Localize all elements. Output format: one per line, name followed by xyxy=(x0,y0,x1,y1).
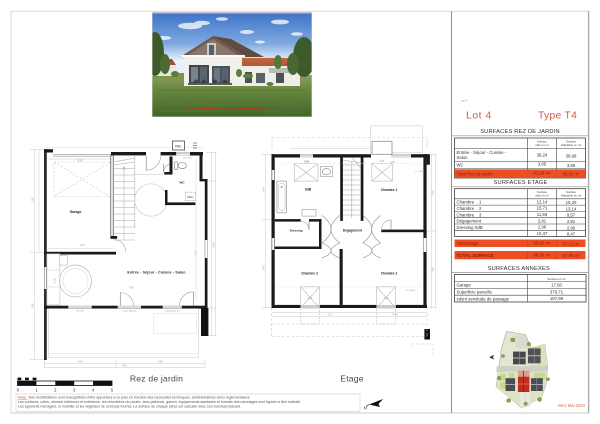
svg-text:187,98: 187,98 xyxy=(550,296,564,301)
svg-text:2,96: 2,96 xyxy=(31,303,35,309)
svg-text:Dressing: Dressing xyxy=(290,229,303,233)
svg-text:coul 0,90x2,15: coul 0,90x2,15 xyxy=(122,310,137,312)
svg-text:Total Etage: Total Etage xyxy=(457,241,480,246)
svg-text:Vr 1,98m²: Vr 1,98m² xyxy=(406,289,416,292)
svg-text:Chambre 2: Chambre 2 xyxy=(381,272,398,276)
svg-text:10,20: 10,20 xyxy=(566,200,577,205)
svg-text:Type T4: Type T4 xyxy=(538,111,577,122)
svg-text:al 1,50e: al 1,50e xyxy=(76,310,85,312)
svg-text:2,96: 2,96 xyxy=(538,225,547,230)
svg-text:40,53 m²: 40,53 m² xyxy=(563,172,581,177)
svg-text:Rez de jardin: Rez de jardin xyxy=(130,373,183,383)
svg-text:1: 1 xyxy=(35,388,38,393)
svg-text:Chambre 2: Chambre 2 xyxy=(457,206,482,211)
svg-text:Les appareils ménagers, le mob: Les appareils ménagers, le mobilier et l… xyxy=(18,405,241,409)
svg-text:2,05: 2,05 xyxy=(380,161,385,163)
svg-text:PAC: PAC xyxy=(187,195,194,199)
svg-text:Etage: Etage xyxy=(340,373,363,383)
svg-text:Superficie parcelle: Superficie parcelle xyxy=(457,290,493,295)
svg-text:36,68: 36,68 xyxy=(566,154,577,159)
svg-text:98,69 m²: 98,69 m² xyxy=(534,252,552,257)
svg-text:al 1,50 h: al 1,50 h xyxy=(183,157,192,159)
svg-text:5: 5 xyxy=(111,388,114,393)
svg-text:2,90: 2,90 xyxy=(79,243,85,247)
svg-text:4,18: 4,18 xyxy=(384,298,389,300)
svg-text:Les surfaces, côtes, niveaux i: Les surfaces, côtes, niveaux intérieurs … xyxy=(18,400,301,404)
svg-text:Nota : Des modifications sont: Nota : Des modifications sont susceptibl… xyxy=(18,396,250,400)
svg-text:utile en m²: utile en m² xyxy=(535,143,549,147)
svg-text:2,81: 2,81 xyxy=(567,219,576,224)
svg-text:5,56: 5,56 xyxy=(194,250,198,256)
svg-text:SURFACES ETAGE: SURFACES ETAGE xyxy=(494,180,548,186)
svg-text:7,46: 7,46 xyxy=(128,286,134,290)
svg-text:Total Rez de jardin: Total Rez de jardin xyxy=(457,171,494,176)
svg-text:43,09 m²: 43,09 m² xyxy=(534,171,552,176)
svg-text:39,24: 39,24 xyxy=(537,153,548,158)
svg-text:1,20: 1,20 xyxy=(304,161,309,163)
svg-text:3,85: 3,85 xyxy=(538,162,547,167)
svg-text:3,66: 3,66 xyxy=(157,360,163,364)
svg-text:SURFACES ANNEXES: SURFACES ANNEXES xyxy=(488,266,550,272)
svg-text:2,46: 2,46 xyxy=(431,190,435,196)
svg-text:2,27: 2,27 xyxy=(308,298,313,300)
svg-text:12,14: 12,14 xyxy=(537,199,548,204)
svg-text:11,59: 11,59 xyxy=(537,212,548,217)
svg-text:Dégagement: Dégagement xyxy=(457,219,482,224)
svg-text:13,14: 13,14 xyxy=(566,206,577,211)
svg-text:10,37: 10,37 xyxy=(537,231,548,236)
svg-text:Habitable en m²: Habitable en m² xyxy=(561,194,581,198)
svg-text:3,85: 3,85 xyxy=(567,163,576,168)
svg-text:3,37: 3,37 xyxy=(327,313,333,317)
svg-text:3,44: 3,44 xyxy=(261,265,265,271)
svg-text:4: 4 xyxy=(92,388,95,393)
svg-text:7,86: 7,86 xyxy=(121,364,127,368)
svg-text:WC: WC xyxy=(457,162,464,167)
svg-text:Salon: Salon xyxy=(457,155,469,160)
svg-text:379,71: 379,71 xyxy=(550,289,564,294)
svg-text:Surface en m²: Surface en m² xyxy=(547,277,565,281)
svg-text:2,81: 2,81 xyxy=(538,218,547,223)
svg-text:2,86: 2,86 xyxy=(431,267,435,273)
svg-text:47,13 m²: 47,13 m² xyxy=(563,241,581,246)
svg-text:Chambre 3: Chambre 3 xyxy=(301,272,318,276)
svg-text:Habitable en m²: Habitable en m² xyxy=(561,143,581,147)
svg-text:4,38: 4,38 xyxy=(392,313,398,317)
svg-text:Dégagement: Dégagement xyxy=(343,229,363,233)
svg-text:5,50: 5,50 xyxy=(31,197,35,203)
svg-text:8,47: 8,47 xyxy=(567,232,576,237)
svg-text:15,71: 15,71 xyxy=(537,206,548,211)
svg-text:2: 2 xyxy=(54,388,57,393)
svg-text:87,66 m²: 87,66 m² xyxy=(563,253,581,258)
svg-text:Chambre 1: Chambre 1 xyxy=(457,200,482,205)
svg-text:WC: WC xyxy=(180,181,186,185)
svg-text:PAC: PAC xyxy=(175,144,182,148)
svg-text:Chambre 1: Chambre 1 xyxy=(381,188,398,192)
svg-text:coul 0,90x2,15: coul 0,90x2,15 xyxy=(165,310,180,312)
svg-text:utile en m²: utile en m² xyxy=(535,194,549,198)
svg-text:Lot 4: Lot 4 xyxy=(466,111,492,122)
svg-text:17,50: 17,50 xyxy=(551,283,562,288)
svg-text:4,76: 4,76 xyxy=(53,278,57,284)
svg-text:4,04: 4,04 xyxy=(77,360,83,364)
svg-text:Garage: Garage xyxy=(70,210,82,214)
svg-text:Vr 1,98m²: Vr 1,98m² xyxy=(415,170,425,173)
svg-text:Entrée - Séjour - Cuisine - Sa: Entrée - Séjour - Cuisine - Salon xyxy=(127,271,185,275)
svg-text:5,56: 5,56 xyxy=(212,242,216,248)
svg-text:SdB: SdB xyxy=(305,188,312,192)
svg-text:3,90: 3,90 xyxy=(77,159,83,163)
svg-text:2,96: 2,96 xyxy=(567,225,576,230)
svg-text:SURFACES REZ DE JARDIN: SURFACES REZ DE JARDIN xyxy=(480,129,560,135)
svg-text:Dressing SdB: Dressing SdB xyxy=(457,225,483,230)
svg-text:55,60 m²: 55,60 m² xyxy=(534,241,552,246)
svg-text:0: 0 xyxy=(17,388,20,393)
svg-text:zdont servitude de passage: zdont servitude de passage xyxy=(457,296,510,301)
svg-text:9,57: 9,57 xyxy=(567,213,576,218)
svg-text:TOTAL SURFACE: TOTAL SURFACE xyxy=(457,253,494,258)
svg-text:MAJ Mai 2024: MAJ Mai 2024 xyxy=(558,403,585,408)
svg-text:2,44: 2,44 xyxy=(261,187,265,193)
svg-text:Garage: Garage xyxy=(457,283,472,288)
svg-text:3: 3 xyxy=(73,388,76,393)
svg-text:Chambre 3: Chambre 3 xyxy=(457,212,482,217)
